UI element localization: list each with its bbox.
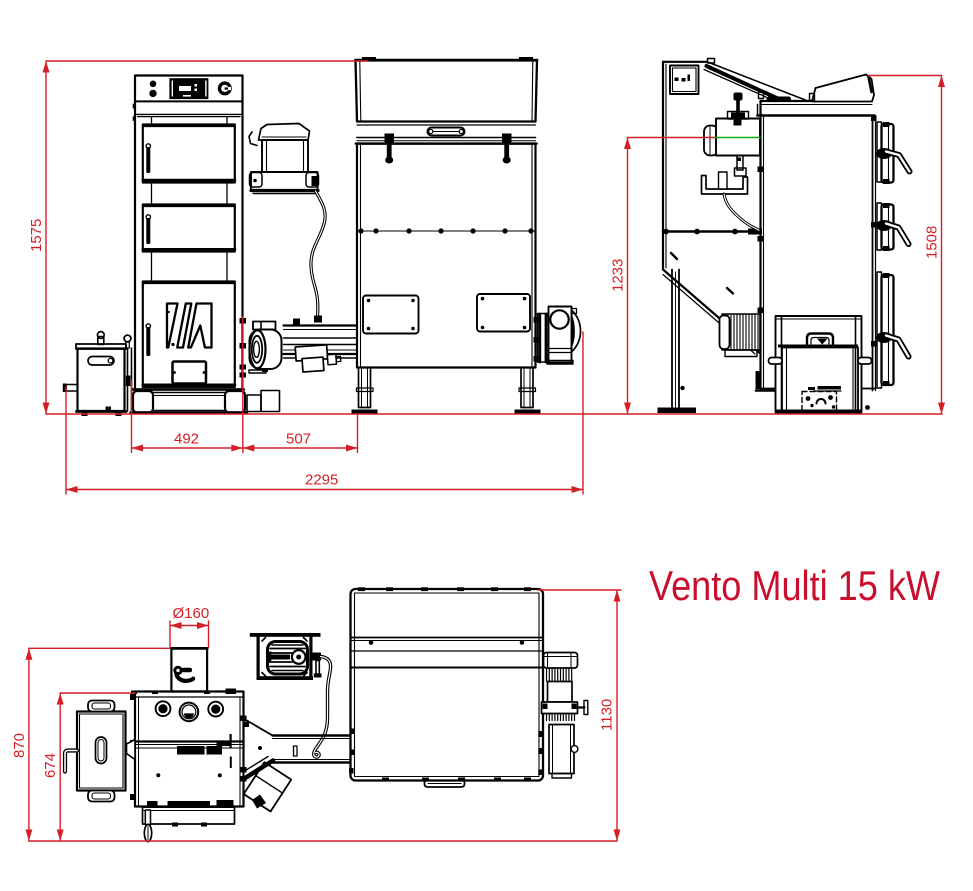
svg-text:2295: 2295 [305, 472, 338, 489]
svg-text:1508: 1508 [924, 226, 941, 259]
svg-text:1233: 1233 [610, 259, 627, 292]
svg-text:492: 492 [174, 431, 199, 448]
svg-text:1575: 1575 [28, 219, 45, 252]
svg-text:1130: 1130 [599, 699, 616, 731]
svg-text:870: 870 [11, 733, 28, 758]
svg-text:507: 507 [286, 431, 311, 448]
svg-text:Vento Multi 15 kW: Vento Multi 15 kW [649, 562, 940, 609]
svg-text:674: 674 [42, 753, 59, 778]
svg-text:Ø160: Ø160 [173, 605, 210, 622]
